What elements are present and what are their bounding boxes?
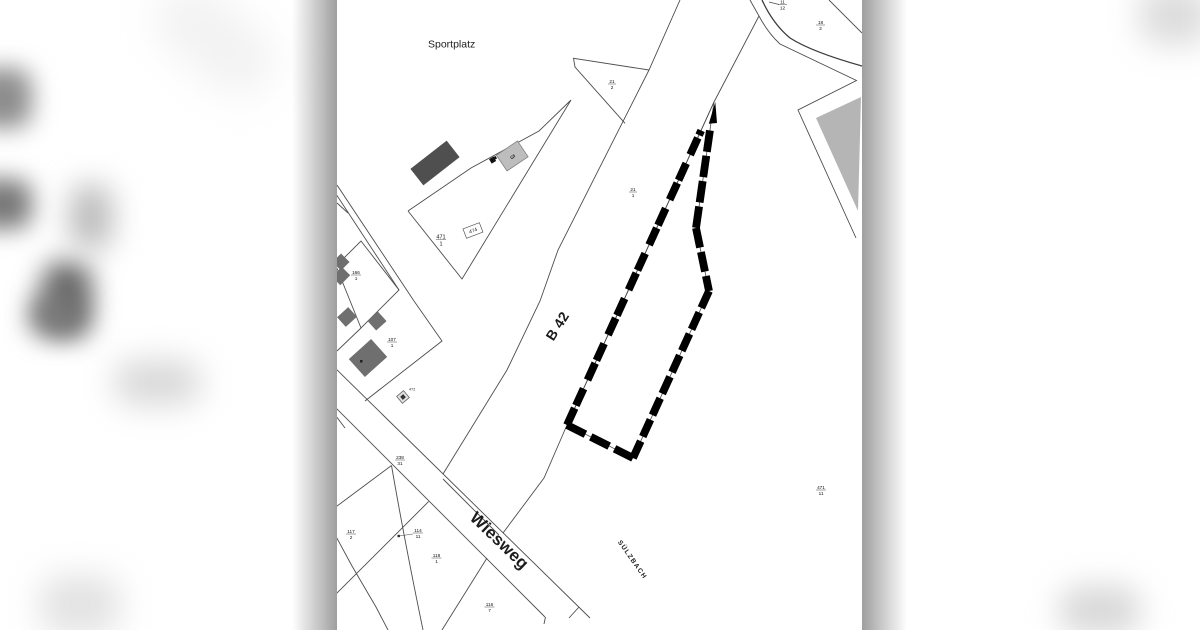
svg-text:Wiesweg: Wiesweg bbox=[466, 508, 532, 573]
svg-text:31: 31 bbox=[397, 461, 403, 466]
svg-text:12: 12 bbox=[780, 6, 786, 11]
svg-text:472: 472 bbox=[409, 388, 415, 392]
svg-text:B 42: B 42 bbox=[542, 309, 572, 344]
svg-text:2: 2 bbox=[819, 26, 822, 31]
svg-text:1: 1 bbox=[632, 193, 635, 198]
svg-text:117: 117 bbox=[347, 529, 355, 534]
svg-text:11: 11 bbox=[416, 534, 421, 539]
svg-text:1: 1 bbox=[435, 559, 438, 564]
svg-text:2: 2 bbox=[611, 85, 614, 90]
svg-text:1: 1 bbox=[439, 242, 442, 248]
svg-text:21: 21 bbox=[630, 187, 636, 192]
svg-text:116: 116 bbox=[486, 602, 494, 607]
svg-text:7: 7 bbox=[488, 608, 491, 613]
svg-text:21: 21 bbox=[609, 79, 615, 84]
svg-text:11: 11 bbox=[819, 491, 824, 496]
svg-text:471: 471 bbox=[817, 485, 825, 490]
svg-text:2: 2 bbox=[350, 535, 353, 540]
svg-text:238: 238 bbox=[396, 455, 404, 460]
svg-text:107: 107 bbox=[388, 337, 396, 342]
svg-text:1: 1 bbox=[391, 343, 394, 348]
svg-text:114: 114 bbox=[414, 528, 422, 533]
svg-text:1: 1 bbox=[355, 276, 358, 281]
svg-text:118: 118 bbox=[433, 553, 441, 558]
svg-text:Sportplatz: Sportplatz bbox=[428, 39, 475, 51]
svg-text:166: 166 bbox=[352, 270, 360, 275]
svg-text:SÜLZBACH: SÜLZBACH bbox=[616, 538, 650, 581]
svg-text:18: 18 bbox=[818, 20, 824, 25]
svg-text:11: 11 bbox=[780, 0, 785, 5]
